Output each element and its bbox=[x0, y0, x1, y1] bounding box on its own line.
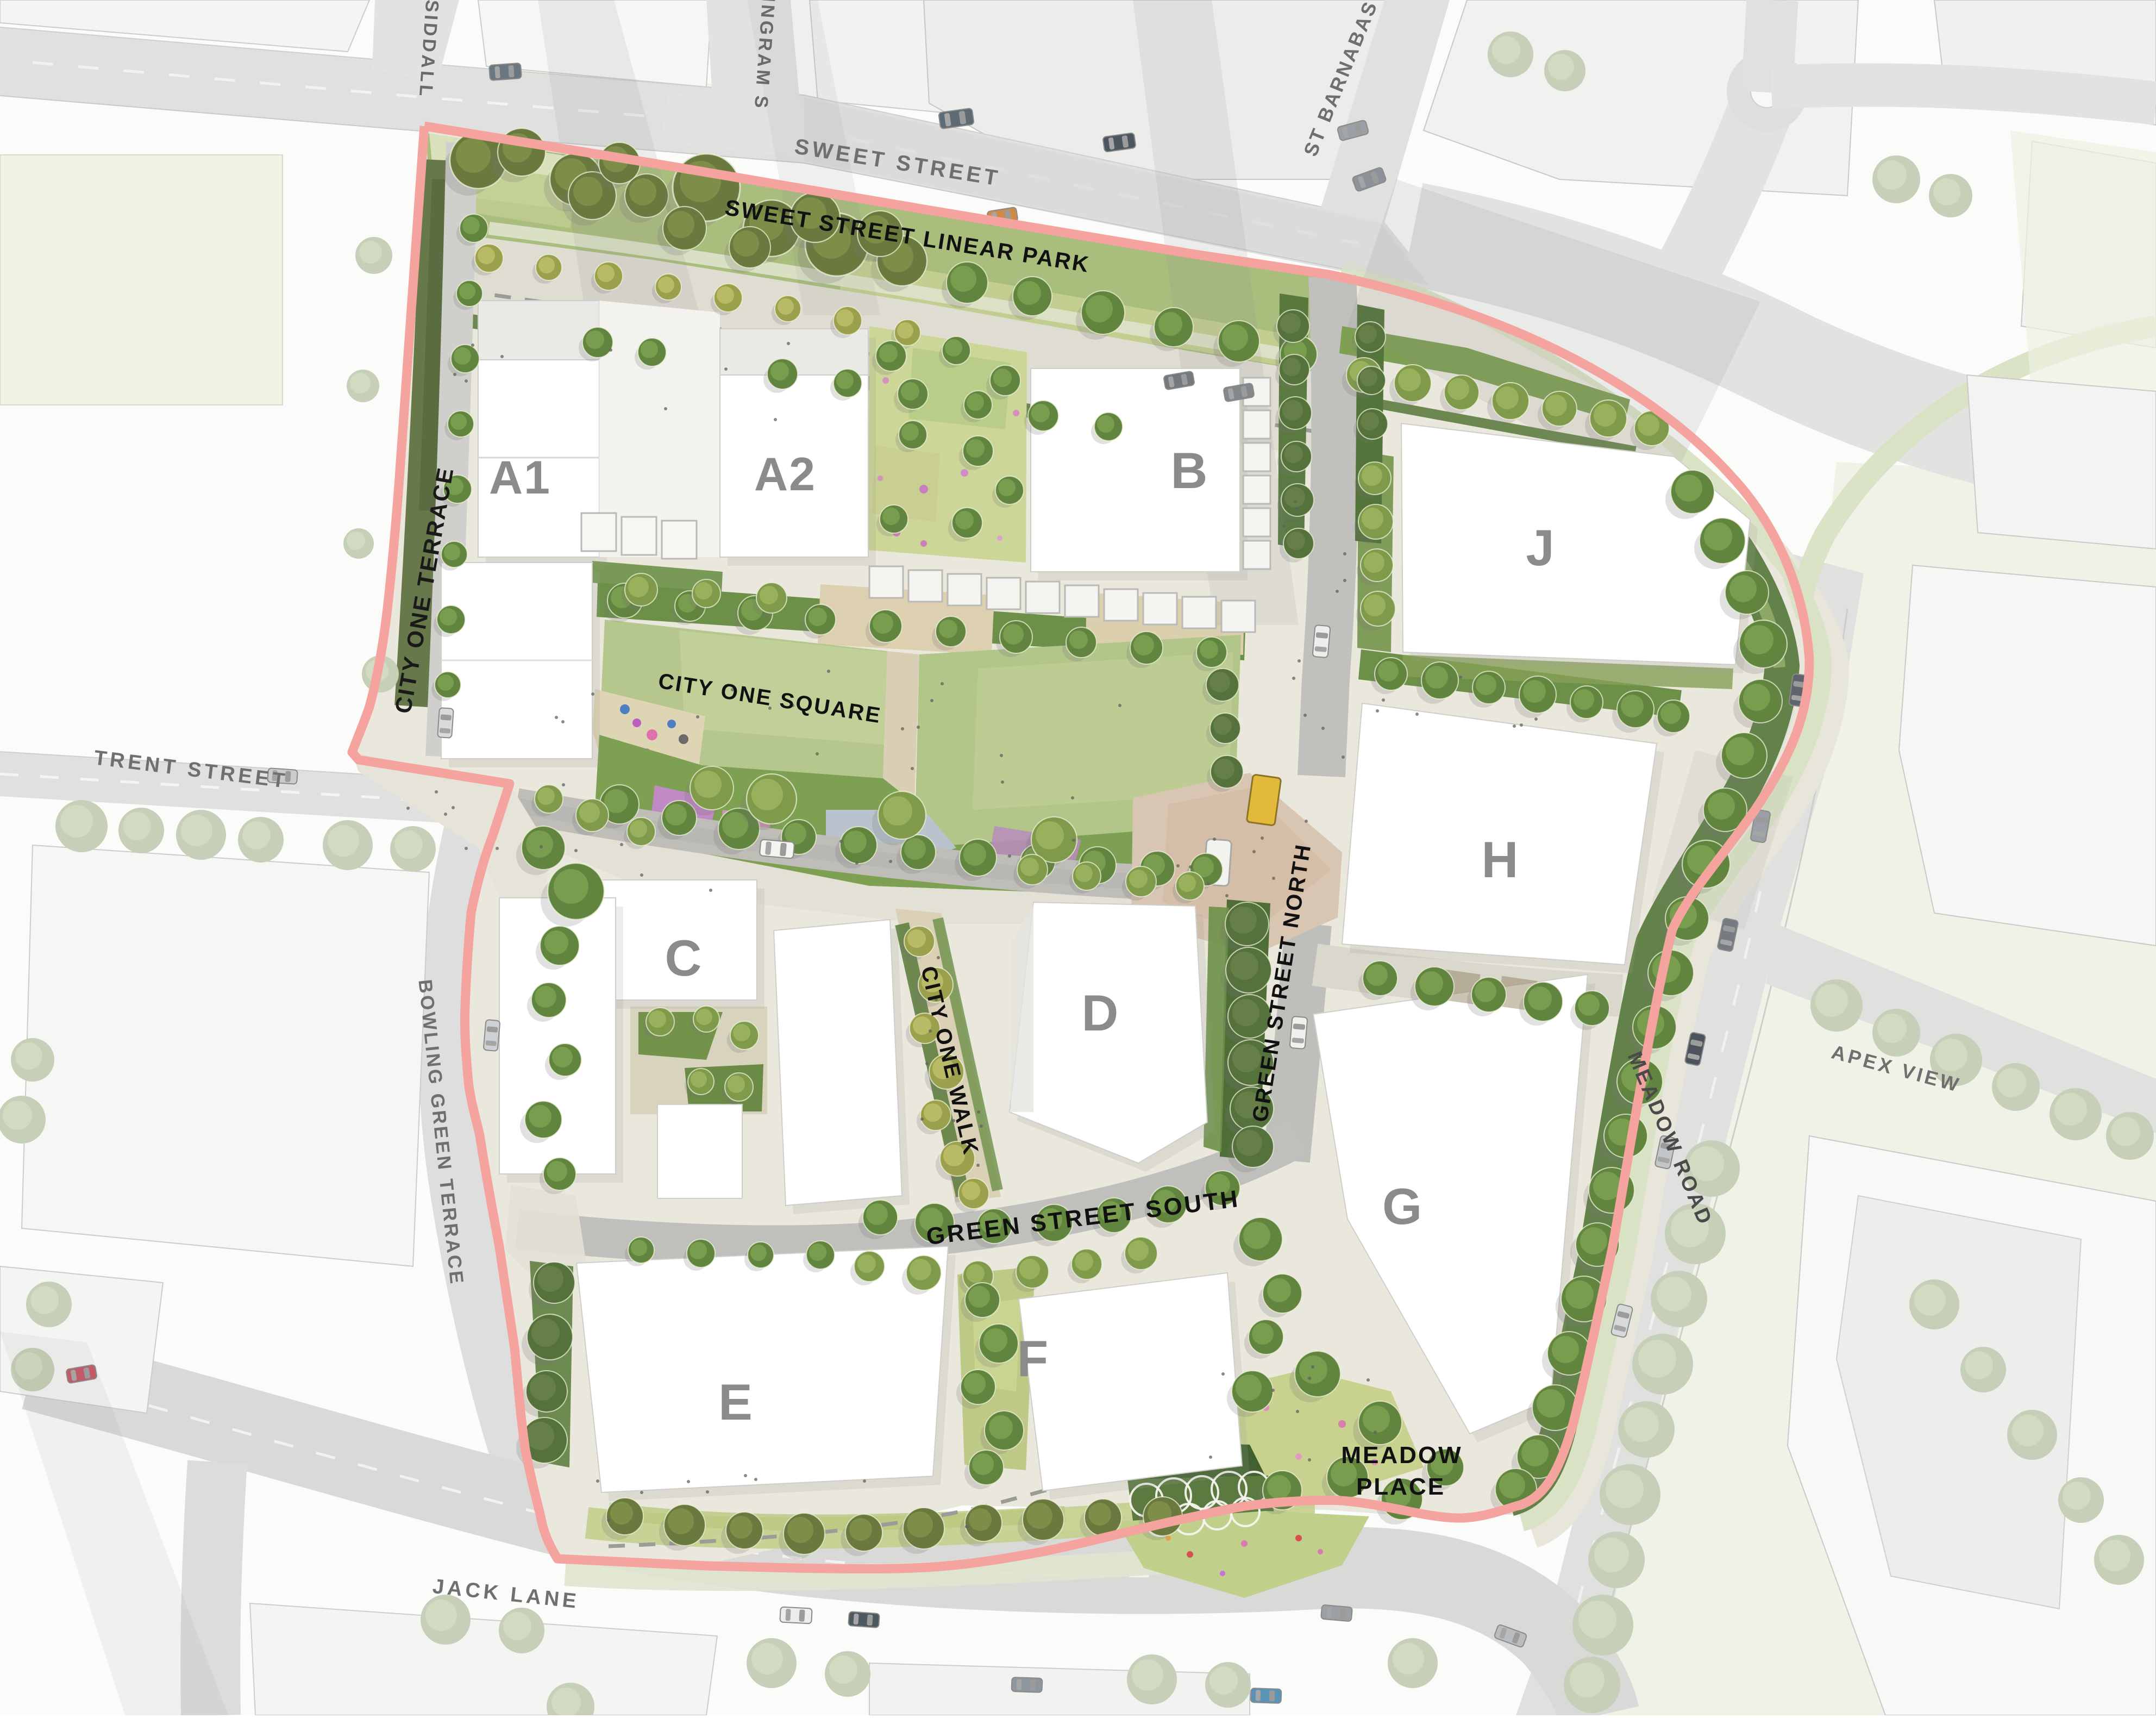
svg-text:A2: A2 bbox=[754, 448, 816, 501]
svg-text:E: E bbox=[718, 1373, 754, 1430]
svg-text:MEADOW: MEADOW bbox=[1341, 1442, 1462, 1469]
svg-text:F: F bbox=[1017, 1330, 1050, 1387]
svg-text:D: D bbox=[1082, 984, 1120, 1041]
svg-text:A1: A1 bbox=[489, 452, 551, 504]
svg-text:C: C bbox=[665, 929, 704, 986]
svg-text:B: B bbox=[1171, 442, 1209, 499]
svg-text:G: G bbox=[1382, 1178, 1424, 1235]
svg-text:H: H bbox=[1482, 831, 1520, 888]
svg-text:PLACE: PLACE bbox=[1356, 1473, 1445, 1500]
svg-text:J: J bbox=[1526, 519, 1556, 576]
